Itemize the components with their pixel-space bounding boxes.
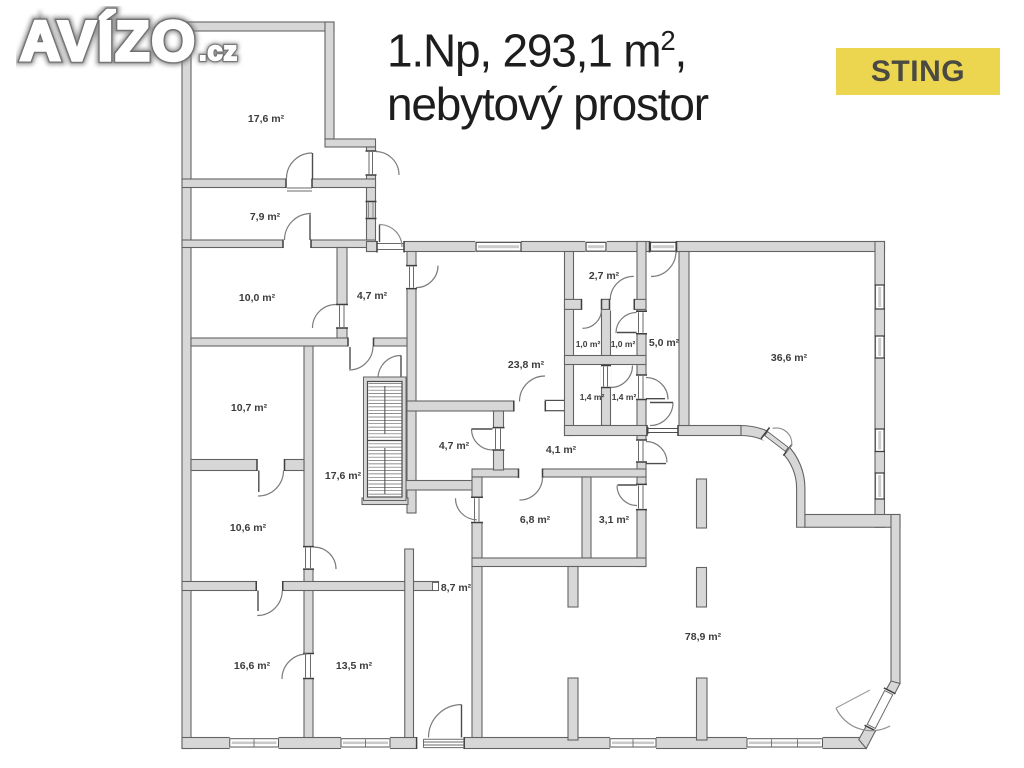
svg-text:1,0 m²: 1,0 m² (611, 339, 636, 349)
svg-text:17,6 m²: 17,6 m² (248, 113, 285, 125)
svg-text:17,6 m²: 17,6 m² (325, 470, 362, 482)
svg-text:3,1 m²: 3,1 m² (599, 514, 630, 526)
svg-text:6,8 m²: 6,8 m² (520, 514, 551, 526)
svg-text:13,5 m²: 13,5 m² (336, 660, 373, 672)
svg-text:16,6 m²: 16,6 m² (234, 660, 271, 672)
svg-text:8,7 m²: 8,7 m² (441, 582, 472, 594)
svg-text:7,9 m²: 7,9 m² (250, 211, 281, 223)
svg-text:2,7 m²: 2,7 m² (589, 270, 620, 282)
svg-text:4,1 m²: 4,1 m² (546, 444, 577, 456)
svg-text:36,6 m²: 36,6 m² (771, 352, 808, 364)
svg-text:10,7 m²: 10,7 m² (231, 402, 268, 414)
svg-text:4,7 m²: 4,7 m² (357, 290, 388, 302)
svg-text:4,7 m²: 4,7 m² (439, 440, 470, 452)
svg-text:1,0 m²: 1,0 m² (576, 339, 601, 349)
svg-text:10,0 m²: 10,0 m² (239, 292, 276, 304)
svg-text:1,4 m²: 1,4 m² (612, 392, 637, 402)
svg-text:AVÍZO: AVÍZO (20, 9, 197, 72)
svg-text:78,9 m²: 78,9 m² (685, 631, 722, 643)
svg-text:1,4 m²: 1,4 m² (580, 392, 605, 402)
svg-text:5,0 m²: 5,0 m² (649, 337, 680, 349)
svg-text:10,6 m²: 10,6 m² (230, 522, 267, 534)
svg-text:.cz: .cz (199, 36, 238, 66)
svg-text:23,8 m²: 23,8 m² (508, 359, 545, 371)
